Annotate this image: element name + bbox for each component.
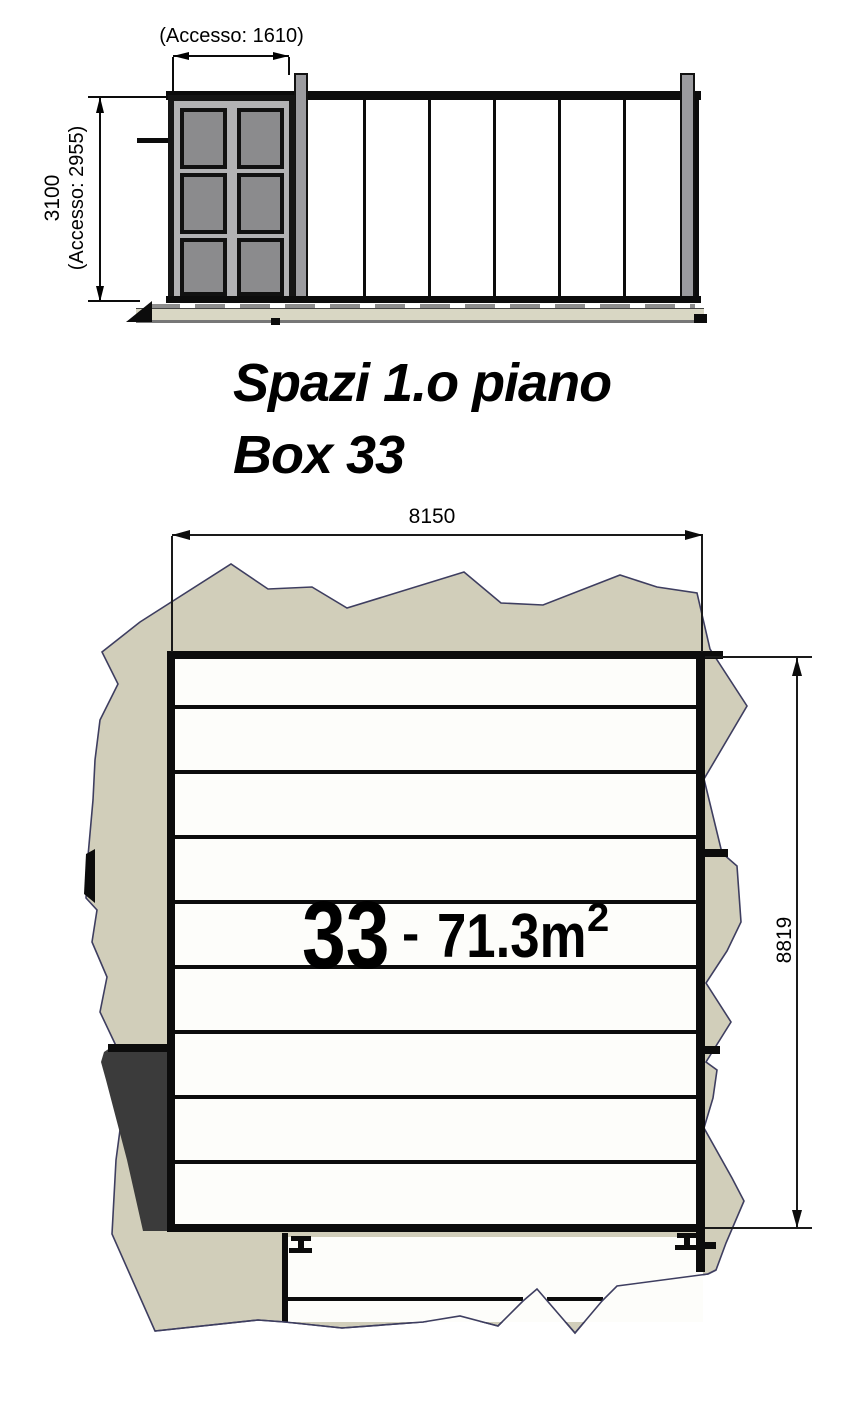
right-edge-line [695,91,699,303]
wall-top [167,651,723,659]
door-panel [180,108,227,169]
box-area-separator: - [402,908,419,960]
plan-height-label: 8819 [771,890,797,990]
box-interior [175,659,697,1226]
box-area-exponent: 2 [587,898,609,938]
annex-left-border [282,1233,288,1322]
dim-line-access-width [173,55,289,57]
door-panel [180,173,227,234]
elevation-access-height-label: (Accesso: 2955) [66,118,88,278]
panel-divider [428,100,431,297]
terrain-edge-mark [84,849,95,903]
door-handle-mark [137,138,172,143]
panel-divider [493,100,496,297]
door-panel [180,238,227,296]
box-number: 33 [302,888,390,984]
post-right [680,73,695,303]
base-mark [271,318,280,325]
elevation-access-width-label: (Accesso: 1610) [159,25,304,47]
elevation-view: (Accesso: 1610) 3100 (Accesso: 2955) [0,0,842,340]
arrowhead-right [273,52,289,60]
annex-divider-b [547,1297,603,1301]
ext-line [88,96,168,98]
panel-divider [363,100,366,297]
wall-right [696,651,705,1272]
arrowhead-up [96,97,104,113]
base-underline [136,320,704,323]
panel-divider [623,100,626,297]
page-title-line1: Spazi 1.o piano [233,356,611,410]
dim-line-height [99,97,101,302]
panel-divider [558,100,561,297]
annex-divider-a [287,1297,523,1301]
door-panel [237,238,284,296]
page-title-line2: Box 33 [233,428,404,482]
ext-line [172,57,174,95]
dark-block-top-bar [108,1044,168,1052]
wall-bottom [167,1224,705,1232]
door-panel [237,108,284,169]
plan-width-label: 8150 [392,505,472,527]
box-area-value: 71.3m [437,906,586,968]
elevation-height-label: 3100 [39,148,65,248]
post-left [294,73,308,303]
drawing-canvas: (Accesso: 1610) 3100 (Accesso: 2955) [0,0,842,1404]
arrowhead-left [173,52,189,60]
base-right-step [694,314,707,323]
wall-left [167,651,175,1232]
ext-line [288,57,290,75]
door-panel [237,173,284,234]
lower-annex [287,1237,703,1322]
ext-line [88,300,140,302]
bottom-beam [166,296,701,303]
base-left-wedge [126,301,152,322]
